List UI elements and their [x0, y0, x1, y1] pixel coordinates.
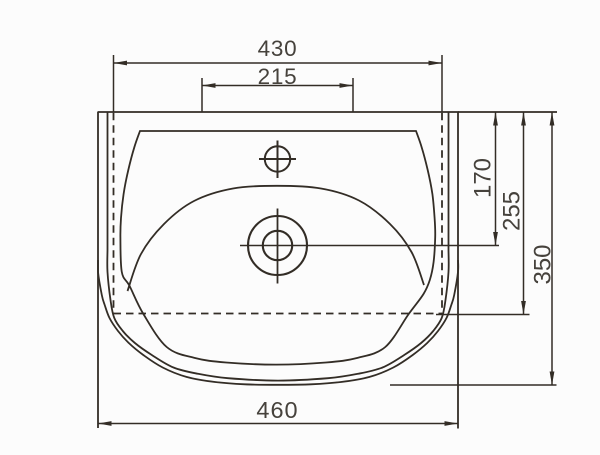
svg-text:170: 170 — [470, 158, 497, 198]
svg-text:215: 215 — [258, 64, 298, 89]
svg-text:255: 255 — [499, 191, 526, 231]
svg-text:460: 460 — [256, 397, 298, 423]
svg-text:430: 430 — [258, 36, 298, 61]
svg-text:350: 350 — [530, 244, 557, 284]
